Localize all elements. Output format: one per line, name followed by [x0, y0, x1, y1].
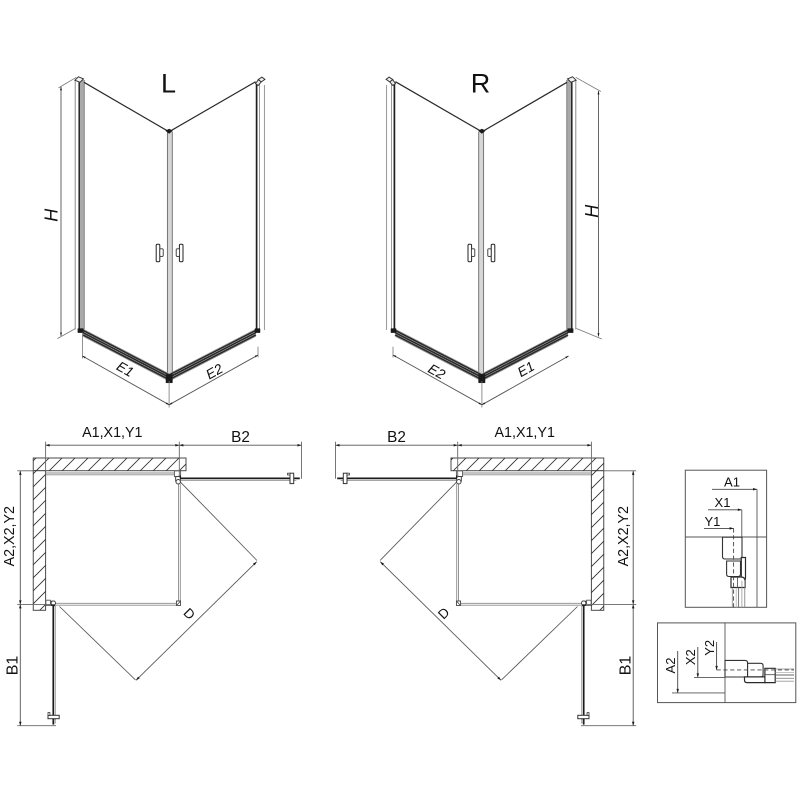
svg-text:X2: X2	[683, 649, 698, 665]
svg-text:H: H	[582, 204, 602, 218]
svg-text:Y2: Y2	[702, 640, 717, 656]
svg-text:B2: B2	[387, 429, 406, 446]
svg-text:A2: A2	[663, 658, 678, 674]
svg-text:Y1: Y1	[704, 514, 720, 529]
svg-text:B1: B1	[5, 656, 22, 676]
svg-text:A1,X1,Y1: A1,X1,Y1	[494, 425, 554, 441]
svg-text:A2,X2,Y2: A2,X2,Y2	[2, 506, 18, 566]
svg-text:A1,X1,Y1: A1,X1,Y1	[82, 425, 142, 441]
svg-text:A2,X2,Y2: A2,X2,Y2	[616, 506, 632, 566]
svg-text:B2: B2	[231, 429, 250, 446]
svg-text:B1: B1	[618, 656, 635, 676]
svg-text:H: H	[41, 208, 61, 222]
svg-text:L: L	[161, 69, 176, 99]
svg-text:R: R	[471, 69, 491, 99]
svg-text:A1: A1	[724, 475, 740, 490]
svg-text:X1: X1	[715, 495, 731, 510]
